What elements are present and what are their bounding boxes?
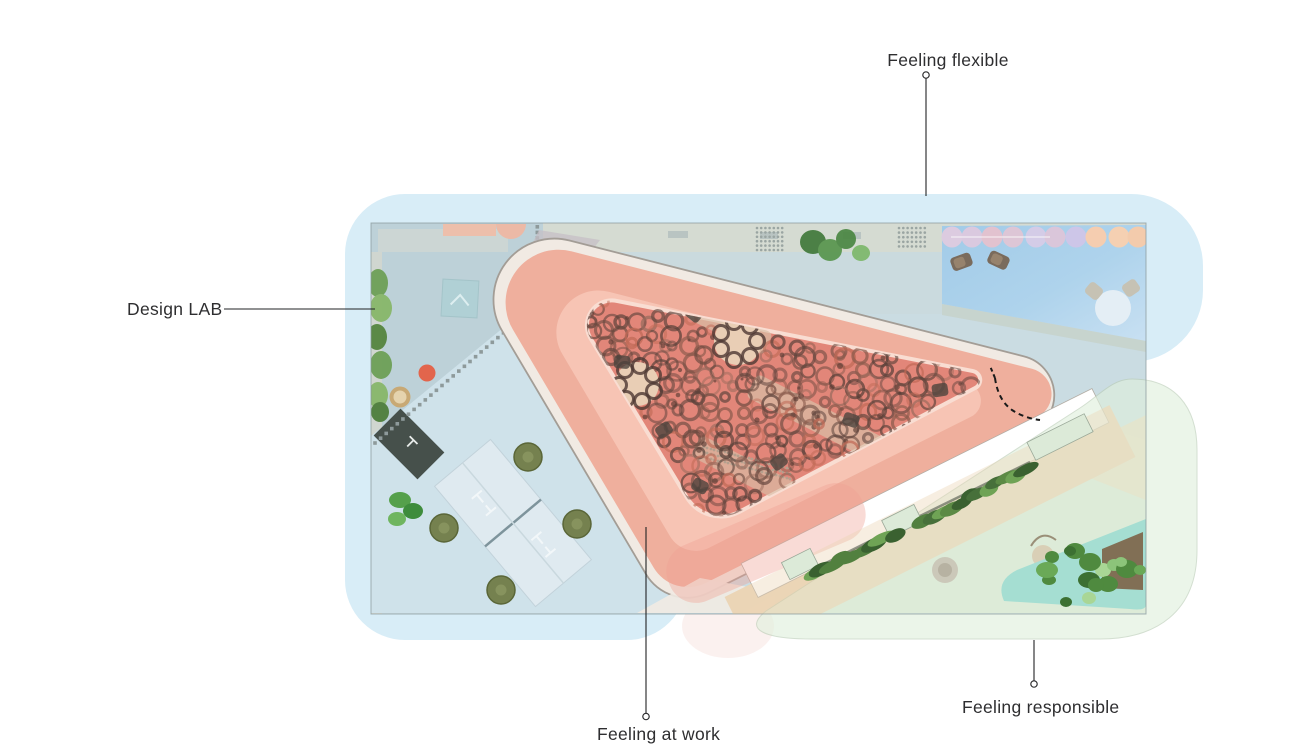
svg-text:Design LAB: Design LAB — [127, 299, 222, 319]
svg-text:Feeling flexible: Feeling flexible — [887, 50, 1009, 70]
svg-text:Feeling responsible: Feeling responsible — [962, 697, 1119, 717]
svg-text:Feeling at work: Feeling at work — [597, 724, 720, 744]
